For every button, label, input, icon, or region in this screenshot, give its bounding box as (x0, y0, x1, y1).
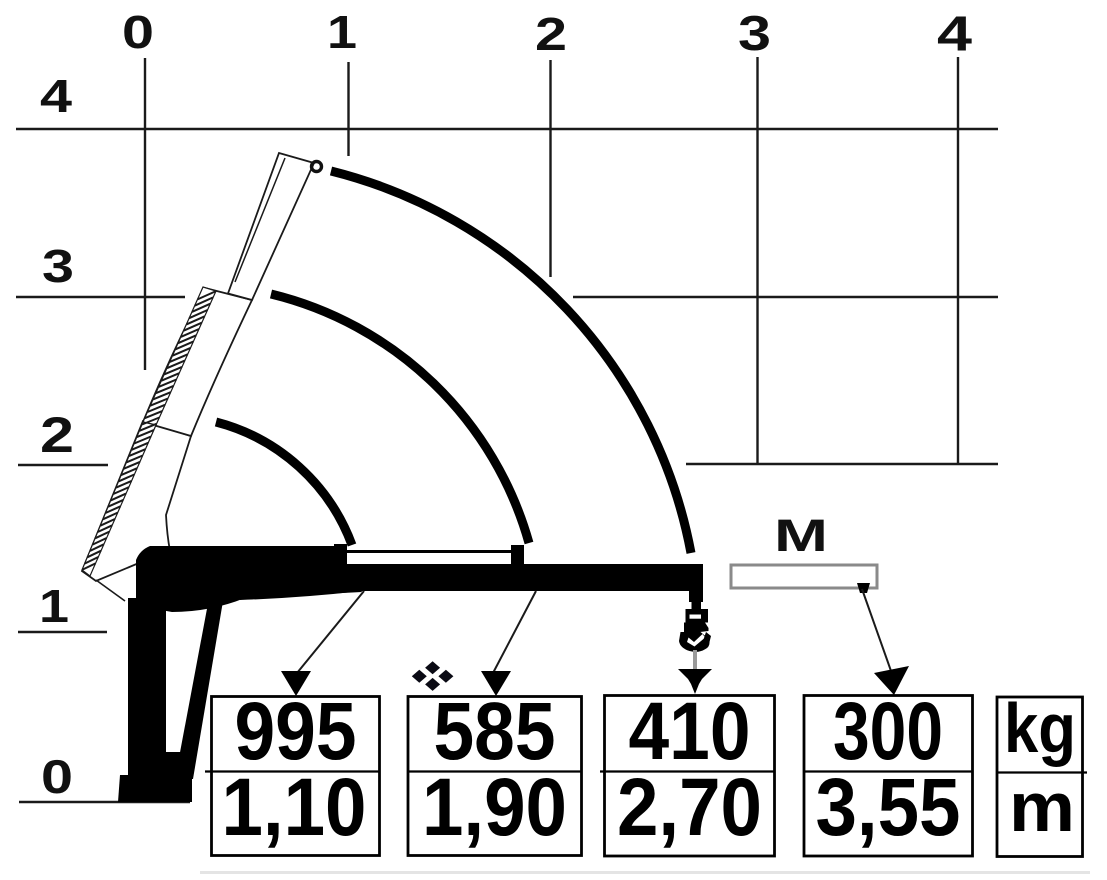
svg-text:m: m (1009, 768, 1075, 846)
svg-text:1,90: 1,90 (422, 762, 567, 853)
svg-text:1,10: 1,10 (222, 762, 367, 853)
svg-text:3,55: 3,55 (816, 762, 961, 853)
svg-text:M: M (774, 510, 828, 561)
svg-text:1: 1 (39, 580, 69, 632)
svg-text:3: 3 (738, 7, 771, 61)
svg-text:2,70: 2,70 (617, 762, 762, 853)
svg-text:2: 2 (40, 407, 74, 463)
svg-text:kg: kg (1004, 689, 1076, 767)
svg-text:2: 2 (535, 8, 567, 60)
svg-text:0: 0 (41, 750, 73, 803)
svg-text:1: 1 (327, 6, 357, 58)
svg-text:3: 3 (42, 240, 74, 292)
svg-text:4: 4 (937, 8, 972, 62)
svg-text:0: 0 (122, 6, 154, 58)
svg-text:4: 4 (40, 70, 73, 122)
